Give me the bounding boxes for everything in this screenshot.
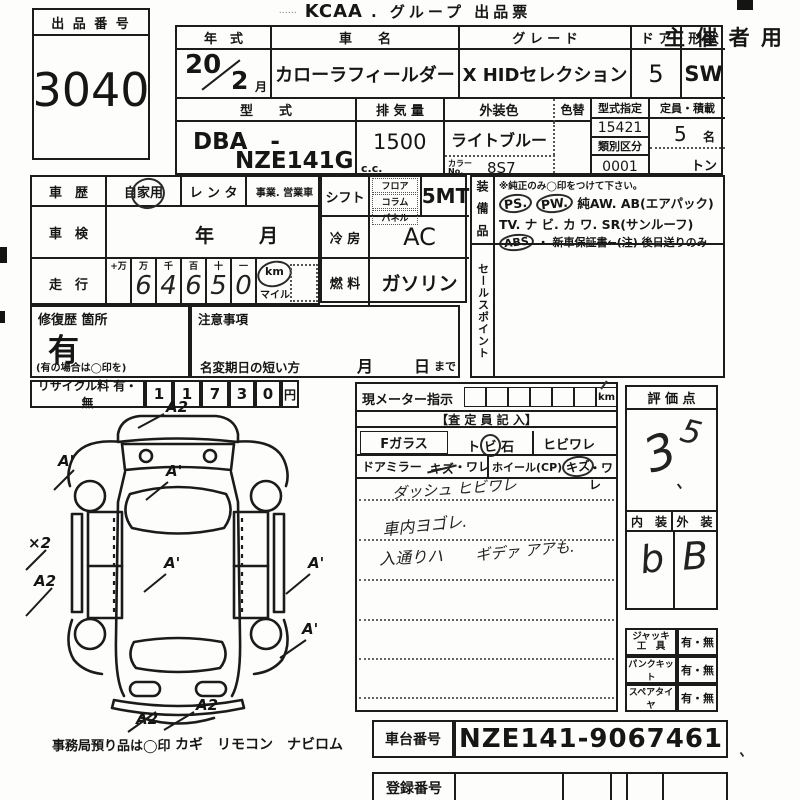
left-rear-wheel — [75, 619, 105, 649]
shift-label: シフト — [322, 177, 370, 217]
chassis-label: 車台番号 — [372, 720, 454, 758]
color-no-cell: カラー No. 8S7 — [445, 155, 555, 177]
drivetrain-table: シフト フロア コラム パネル 5MT 冷 房 AC 燃 料 ガソリン — [320, 175, 467, 303]
history-private: 自家用 — [107, 177, 182, 207]
year-value: 20 — [185, 50, 221, 80]
grade-value: X HIDセレクション — [460, 50, 632, 99]
registration-label: 登録番号 — [374, 774, 456, 800]
mileage-digit-6: 一 0 — [232, 259, 257, 307]
mirror-kizu: キズ — [430, 460, 454, 477]
deadline-made: まで — [434, 358, 456, 374]
meter-km-cell: km — [596, 387, 617, 407]
mirror-divider — [487, 455, 489, 477]
note-rule-6 — [359, 697, 614, 699]
mileage-d6: 0 — [232, 271, 255, 301]
rear-bumper — [112, 700, 244, 715]
equip-ab: AB(エアパック) — [621, 196, 714, 211]
rename-deadline-label: 名変期日の短い方 — [200, 357, 300, 376]
interior-label: 内 装 — [627, 510, 673, 532]
shift-options: フロア コラム パネル — [370, 177, 422, 217]
displacement-cell: 1500 c.c. — [357, 122, 445, 177]
deadline-day: 日 — [414, 353, 430, 377]
mirror-label: ドアミラー — [362, 458, 422, 475]
meter-cell-4 — [530, 387, 552, 407]
mark-upper-left-line — [54, 470, 74, 490]
fuel-label: 燃 料 — [322, 259, 370, 305]
tobi-c: 石 — [501, 440, 514, 455]
mileage-digit-3: 千 4 — [157, 259, 182, 307]
mark-left-a2: A2 — [33, 572, 56, 590]
equip-aw: 純AW. — [577, 196, 616, 211]
car-damage-diagram: A2 A' A' ×2 A2 A' A' A' A2 A2 — [18, 398, 343, 733]
capacity-value: 5 — [674, 122, 687, 146]
left-sill — [72, 514, 82, 612]
door-value: 5 — [632, 50, 682, 99]
class-value: 0001 — [592, 156, 650, 177]
tail-light-left — [130, 682, 160, 696]
equipment-line1: PS. PW. 純AW. AB(エアパック) — [499, 193, 719, 213]
inspection-label: 車 検 — [32, 207, 107, 259]
fglass-label: Fガラス — [360, 431, 448, 454]
mileage-digit-4: 百 6 — [182, 259, 207, 307]
mileage-unit-cell: km マイル — [257, 259, 290, 307]
registration-divider-4 — [662, 774, 664, 800]
spec-table: 年 式 車 名 グ レ ー ド ド ア 形 状 20 2 月 カローラフィールダ… — [175, 25, 723, 175]
equipment-note: ※純正のみ◯印をつけて下さい。 — [499, 178, 719, 192]
door-header: ド ア — [632, 27, 682, 50]
color-value: ライトブルー — [445, 122, 555, 155]
type-designation-header: 型式指定 — [592, 99, 650, 119]
inspection-month: 月 — [259, 221, 278, 248]
inspection-cell: 年 月 — [107, 207, 322, 259]
grade-header: グ レ ー ド — [460, 27, 632, 50]
wheel-label: ホイール(CP) — [492, 459, 562, 475]
assessor-box: 現メーター指示 km 【査 定 員 記 入】 Fガラス トビ石 ヒビワレ ドアミ… — [355, 382, 618, 712]
title-text: . グループ 出品票 — [371, 1, 531, 22]
exhibit-number-label: 出 品 番 号 — [34, 10, 148, 36]
mark-windshield-line — [146, 482, 168, 500]
model-line2: NZE141G — [235, 148, 354, 174]
equip-pw: PW. — [535, 192, 573, 215]
puncture-kit-value: 有・無 — [677, 656, 718, 684]
sales-point-box — [493, 243, 725, 378]
assessor-header: 【査 定 員 記 入】 — [357, 410, 616, 428]
shape-header: 形 状 — [682, 27, 725, 50]
equip-ps: PS. — [498, 192, 533, 214]
capacity-unit: 名 — [703, 128, 715, 145]
equipment-label: 装 備 品 — [470, 175, 495, 245]
capacity-header: 定員・積載 — [650, 99, 725, 119]
equipment-line2: TV. ナ ビ. カ ワ. SR(サンルーフ) — [499, 214, 719, 233]
meter-cell-6 — [574, 387, 596, 407]
mirror-ware: ・ワレ — [454, 458, 490, 475]
mark-center-line — [144, 574, 166, 592]
exhibit-number-box: 出 品 番 号 3040 — [32, 8, 150, 160]
title-dots: …… — [279, 6, 297, 16]
scan-mark-left-2 — [0, 311, 5, 323]
equipment-box: ※純正のみ◯印をつけて下さい。 PS. PW. 純AW. AB(エアパック) T… — [493, 175, 725, 245]
exterior-label: 外 装 — [673, 510, 716, 532]
assessor-note-3: 入通りハ — [378, 542, 443, 569]
meter-cell-1 — [464, 387, 486, 407]
windshield — [125, 487, 230, 534]
mileage-d2: 6 — [132, 271, 155, 301]
mileage-h2: 万 — [132, 259, 155, 271]
washer-right — [204, 450, 216, 462]
shift-opt-column: コラム — [372, 194, 418, 209]
fglass-divider — [532, 431, 534, 454]
washer-left — [140, 450, 152, 462]
jack-label-2: 工 具 — [627, 642, 675, 652]
mileage-digit-5: 十 5 — [207, 259, 232, 307]
right-front-fender — [234, 441, 288, 486]
office-note: 事務局預り品は◯印 — [52, 735, 171, 754]
mileage-d3: 4 — [157, 271, 180, 301]
rating-mid-divider — [673, 532, 675, 608]
fuel-value: ガソリン — [370, 259, 469, 305]
jack-label-cell: ジャッキ 工 具 — [625, 628, 677, 656]
front-bumper — [118, 416, 238, 442]
month-value: 2 — [231, 66, 248, 95]
type-designation-value: 15421 — [592, 119, 650, 138]
repair-note: (有の場合は◯印を) — [36, 359, 126, 374]
mileage-digit-1: +万 — [107, 259, 132, 307]
registration-row: 登録番号 — [372, 772, 728, 800]
mileage-h6: 一 — [232, 259, 255, 271]
mileage-h4: 百 — [182, 259, 205, 271]
assessor-note-2: 車内ヨゴレ. — [381, 508, 468, 541]
interior-grade: b — [637, 536, 667, 583]
model-value-cell: DBA - NZE141G — [177, 122, 357, 177]
spare-tire-value: 有・無 — [677, 684, 718, 712]
meter-label: 現メーター指示 — [362, 389, 453, 408]
mark-right-lower: A' — [301, 620, 318, 638]
shift-opt-floor: フロア — [372, 178, 418, 193]
caution-label: 注意事項 — [198, 309, 248, 328]
jack-value: 有・無 — [677, 628, 718, 656]
right-rear-wheel — [251, 619, 281, 649]
mileage-h5: 十 — [207, 259, 230, 271]
repair-box: 修復歴 箇所 有 (有の場合は◯印を) — [30, 305, 190, 378]
mark-center: A' — [163, 554, 180, 572]
mileage-d5: 5 — [207, 271, 230, 301]
history-label: 車 歴 — [32, 177, 107, 207]
model-header: 型 式 — [177, 99, 357, 122]
scan-mark-left-1 — [0, 247, 7, 263]
mark-bottom-right: A2 — [195, 696, 218, 714]
mileage-h3: 千 — [157, 259, 180, 271]
meter-cell-5 — [552, 387, 574, 407]
sales-point-label: セールスポイント — [470, 243, 495, 378]
body-side-left — [116, 472, 125, 696]
meter-cell-2 — [486, 387, 508, 407]
deadline-month: 月 — [357, 353, 373, 377]
scan-mark-top-right — [737, 0, 753, 10]
office-items: カギ リモコン ナビロム — [175, 734, 343, 754]
history-table: 車 歴 自家用 レ ン タ 事業. 営業車 車 検 年 月 走 行 +万 万 6… — [30, 175, 320, 305]
right-front-wheel — [251, 481, 281, 511]
exterior-grade: B — [680, 533, 709, 579]
puncture-kit-label: パンクキット — [625, 656, 677, 684]
mark-upper-left: A' — [57, 452, 74, 470]
name-header: 車 名 — [272, 27, 460, 50]
registration-divider-2 — [610, 774, 612, 800]
aircon-value: AC — [370, 217, 469, 259]
inspection-year: 年 — [195, 221, 214, 248]
month-unit: 月 — [255, 78, 267, 95]
mileage-d4: 6 — [182, 271, 205, 301]
color-change-cell — [555, 122, 592, 177]
mark-left-x2-line — [26, 550, 46, 570]
history-business: 事業. 営業車 — [247, 177, 322, 207]
year-cell: 20 2 月 — [177, 50, 272, 99]
auction-sheet: …… KCAA . グループ 出品票 主 催 者 用 出 品 番 号 3040 … — [0, 0, 800, 800]
mileage-note-box — [290, 264, 318, 302]
kcaa-logo: KCAA — [305, 1, 363, 22]
mileage-h1: +万 — [107, 259, 130, 271]
rating-score-sup: 5 — [677, 411, 706, 453]
meter-cell-3 — [508, 387, 530, 407]
wheel-ware: ・ワレ — [589, 459, 616, 493]
mark-top: A2 — [165, 398, 188, 416]
rating-label: 評 価 点 — [627, 387, 716, 410]
spare-tire-label: スペアタイヤ — [625, 684, 677, 712]
chassis-value: NZE141-9067461 — [454, 720, 728, 758]
left-front-wheel — [75, 481, 105, 511]
registration-divider-3 — [626, 774, 628, 800]
mark-left-a2-line — [26, 588, 52, 616]
displacement-unit: c.c. — [361, 162, 382, 175]
note-rule-5 — [359, 658, 614, 660]
right-sill — [274, 514, 284, 612]
mileage-mile: マイル — [260, 286, 290, 301]
mark-right-upper: A' — [307, 554, 324, 572]
note-rule-4 — [359, 619, 614, 621]
left-front-fender — [68, 441, 122, 486]
class-header: 類別区分 — [592, 138, 650, 156]
color-header: 外装色 — [445, 99, 555, 122]
registration-divider-1 — [562, 774, 564, 800]
rear-glass — [130, 638, 225, 672]
fglass-crack: ヒビワレ — [543, 434, 595, 453]
color-change-header: 色替 — [555, 99, 592, 122]
chassis-tick-mark: 、 — [738, 736, 756, 762]
note-rule-2 — [359, 539, 614, 541]
displacement-header: 排 気 量 — [357, 99, 445, 122]
shape-value: SW — [682, 50, 725, 99]
rating-box: 評 価 点 3 、 5 内 装 外 装 b B — [625, 385, 718, 610]
mileage-digit-2: 万 6 — [132, 259, 157, 307]
mark-right-upper-line — [286, 574, 310, 594]
exhibit-number-value: 3040 — [34, 50, 148, 130]
rating-score-comma: 、 — [675, 465, 695, 494]
name-value: カローラフィールダー — [272, 50, 460, 99]
tobi-a: ト — [467, 440, 480, 455]
mileage-label: 走 行 — [32, 259, 107, 307]
accessories-table: ジャッキ 工 具 有・無 パンクキット 有・無 スペアタイヤ 有・無 — [625, 628, 718, 712]
mark-left-x2: ×2 — [28, 534, 51, 552]
year-header: 年 式 — [177, 27, 272, 50]
sheet-title: …… KCAA . グループ 出品票 — [225, 0, 585, 22]
aircon-label: 冷 房 — [322, 217, 370, 259]
tail-light-right — [196, 682, 226, 696]
history-rental: レ ン タ — [182, 177, 247, 207]
body-side-right — [231, 472, 240, 696]
note-rule-3 — [359, 579, 614, 581]
displacement-value: 1500 — [373, 130, 426, 154]
capacity-cell: 5 名 — [650, 119, 725, 149]
mark-right-lower-line — [280, 640, 306, 658]
caution-box: 注意事項 名変期日の短い方 月 日 まで — [190, 305, 460, 378]
mark-windshield: A' — [165, 462, 182, 480]
shift-value: 5MT — [422, 177, 469, 217]
ton-cell: トン — [650, 149, 725, 177]
